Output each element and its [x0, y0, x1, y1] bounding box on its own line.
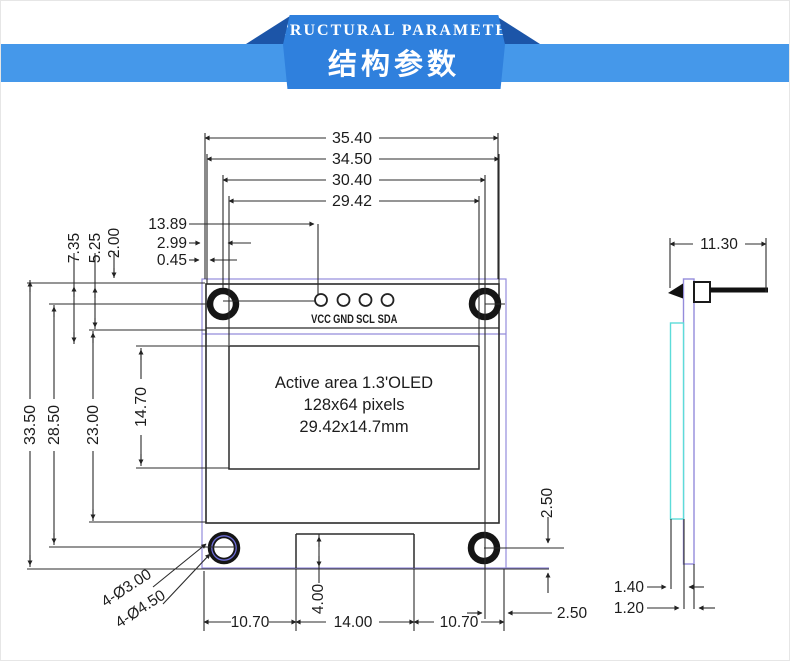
dim-glass-height: 23.00: [85, 405, 102, 445]
mounting-hole-top-left: [210, 291, 236, 317]
side-view: [647, 238, 768, 609]
side-pcb-outline: [684, 279, 695, 564]
pin-vcc: [315, 294, 327, 306]
pin-sda: [382, 294, 394, 306]
active-area-line1: Active area 1.3'OLED: [275, 374, 433, 392]
dim-bottom-tab: 14.00: [334, 614, 373, 631]
dim-side-total-width: 11.30: [700, 236, 738, 253]
mounting-hole-bottom-left: [211, 535, 237, 561]
dim-hole-to-bottom: 2.50: [539, 488, 556, 519]
dim-pcb-thickness: 1.20: [614, 600, 645, 617]
pin-gnd: [338, 294, 350, 306]
pin-labels: VCC GND SCL SDA: [311, 313, 397, 326]
pin-label-gnd: GND: [333, 313, 354, 326]
dim-width-board: 35.40: [332, 130, 372, 147]
dim-hole-span-v: 28.50: [46, 405, 63, 445]
dim-active-height: 14.70: [133, 387, 150, 427]
dim-hole-offset: 2.99: [157, 235, 187, 252]
dim-width-hole-span: 30.40: [332, 172, 372, 189]
dim-tab-height: 4.00: [310, 584, 327, 615]
dim-height-board: 33.50: [22, 405, 39, 445]
dim-width-active: 29.42: [332, 193, 372, 210]
header-pins: [315, 294, 394, 306]
side-glass-outline: [671, 323, 684, 519]
active-area-line3: 29.42x14.7mm: [299, 418, 408, 436]
side-pin-header: [694, 282, 710, 302]
pin-label-vcc: VCC: [311, 313, 331, 326]
dim-glass-offset: 0.45: [157, 252, 187, 269]
dim-bottom-right: 10.70: [440, 614, 479, 631]
engineering-drawing: VCC GND SCL SDA Active area 1.3'OLED 128…: [1, 1, 790, 661]
dim-pin1-offset: 13.89: [148, 216, 187, 233]
structural-parameter-sheet: STRUCTURAL PARAMETER 结构参数: [0, 0, 790, 661]
dim-top-to-pin: 2.00: [106, 228, 123, 259]
dim-hole-to-edge: 2.50: [557, 605, 588, 622]
pin-scl: [360, 294, 372, 306]
dim-width-glass: 34.50: [332, 151, 372, 168]
dim-top-to-pin-row: 5.25: [87, 233, 104, 263]
dim-top-to-active: 7.35: [66, 233, 83, 263]
dim-glass-thickness: 1.40: [614, 579, 645, 596]
dim-bottom-left: 10.70: [231, 614, 270, 631]
pin-label-scl: SCL: [356, 313, 375, 326]
active-area-line2: 128x64 pixels: [304, 396, 405, 414]
active-area-text: Active area 1.3'OLED 128x64 pixels 29.42…: [275, 374, 433, 436]
pin-label-sda: SDA: [378, 313, 398, 326]
